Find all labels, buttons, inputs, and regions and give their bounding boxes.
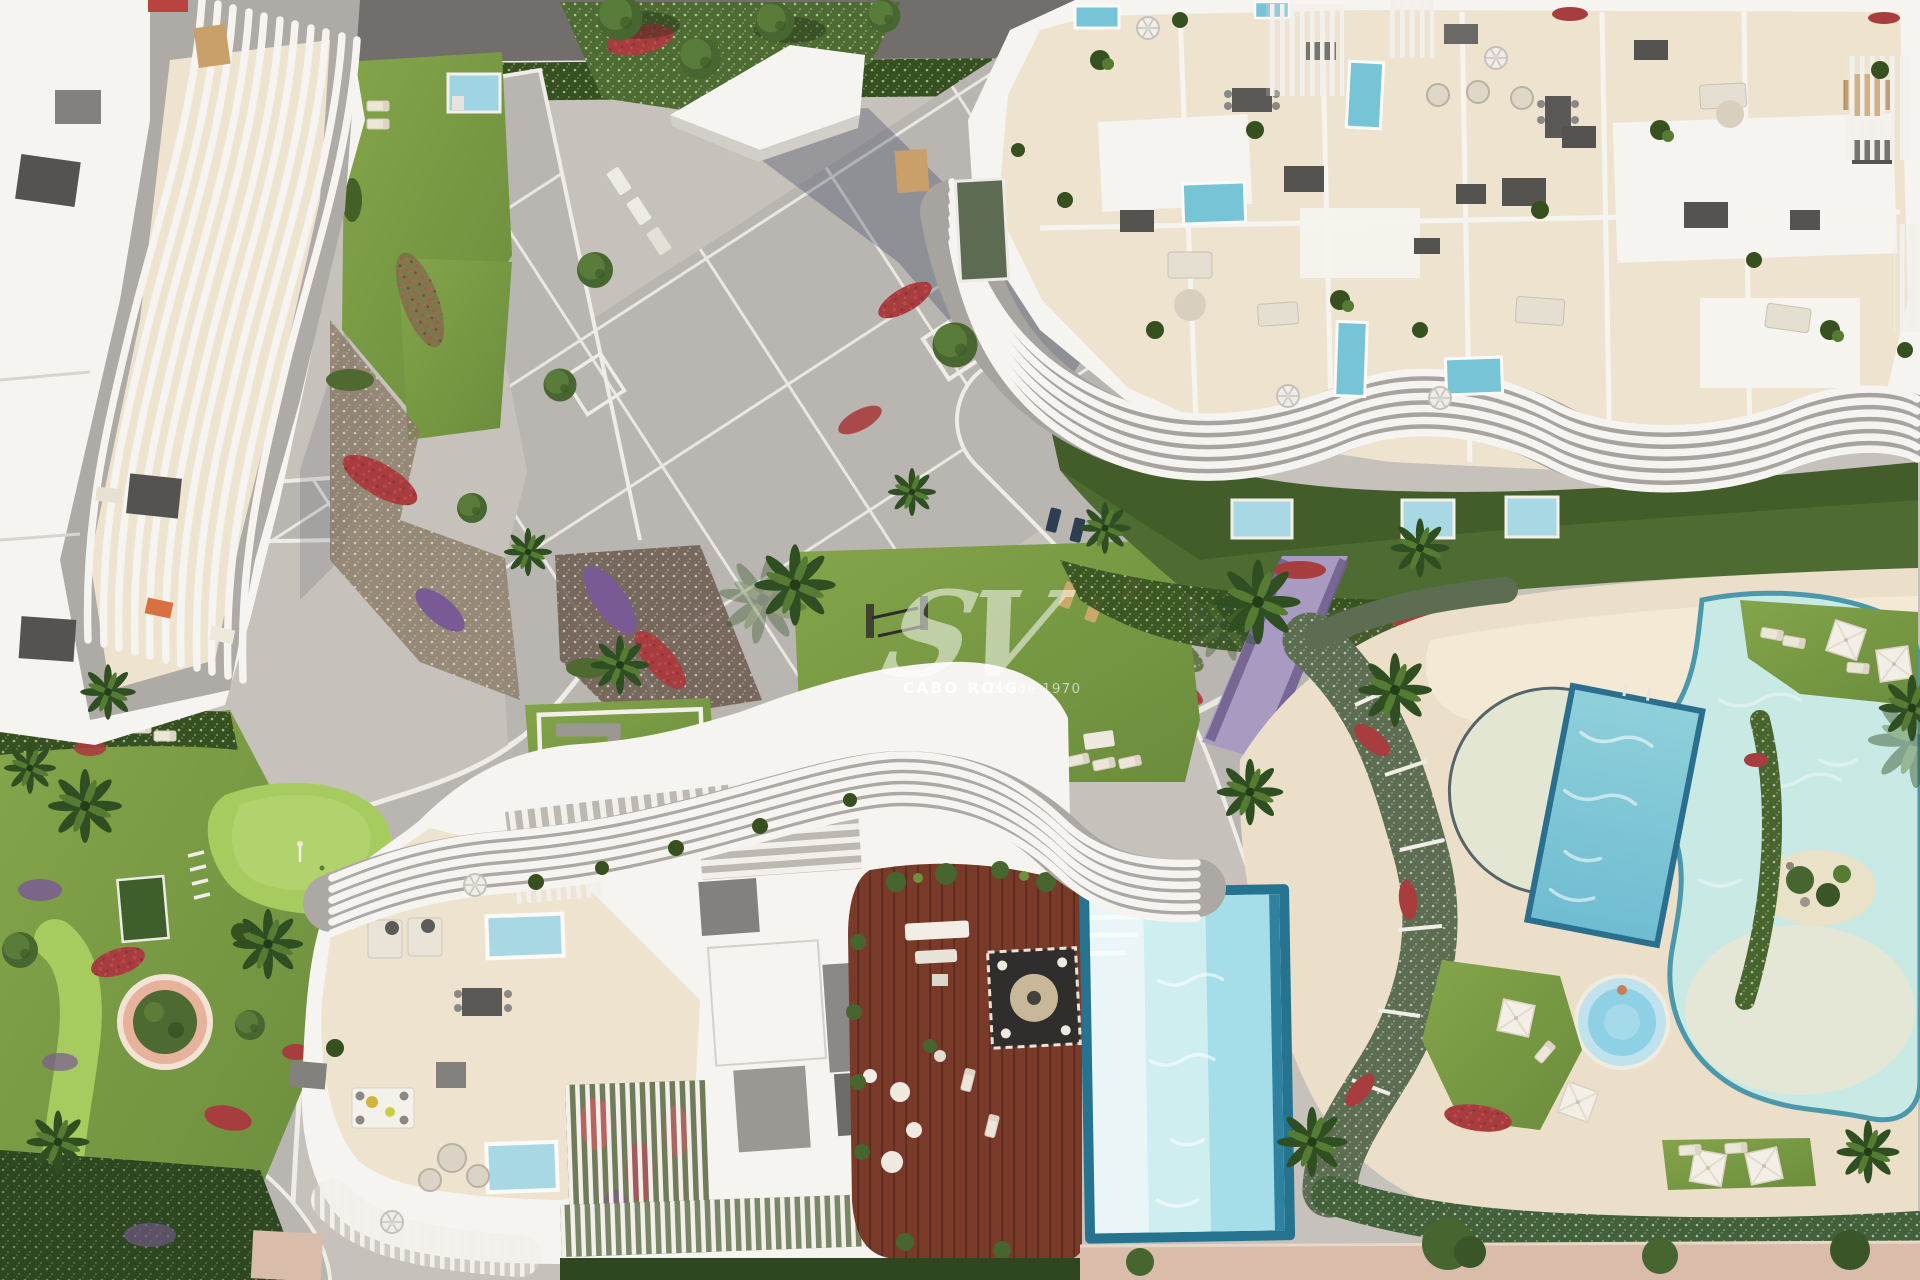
aerial-site-plan: SV CABO ROIG Desde 1970 [0,0,1920,1280]
watermark-tagline: Desde 1970 [988,681,1081,697]
garden-pool-3 [1506,497,1558,537]
jacuzzi [1576,976,1668,1068]
terrace-pool-2 [486,1142,558,1192]
garden-pool-1 [1232,500,1292,538]
round-planter [117,974,213,1070]
rooftop-wooden-deck [846,861,1082,1261]
lawn-court [117,876,168,942]
promenade [1080,1242,1920,1280]
green-roof [955,179,1008,281]
building-b [952,0,1920,489]
site-plan-canvas: SV CABO ROIG Desde 1970 [0,0,1920,1280]
parasols-south [1662,1138,1816,1190]
rooftop-pool [1079,884,1295,1244]
deck-lounge-square [988,948,1081,1048]
rooftop-unit [15,154,81,207]
terrace-pool-1 [486,914,563,959]
